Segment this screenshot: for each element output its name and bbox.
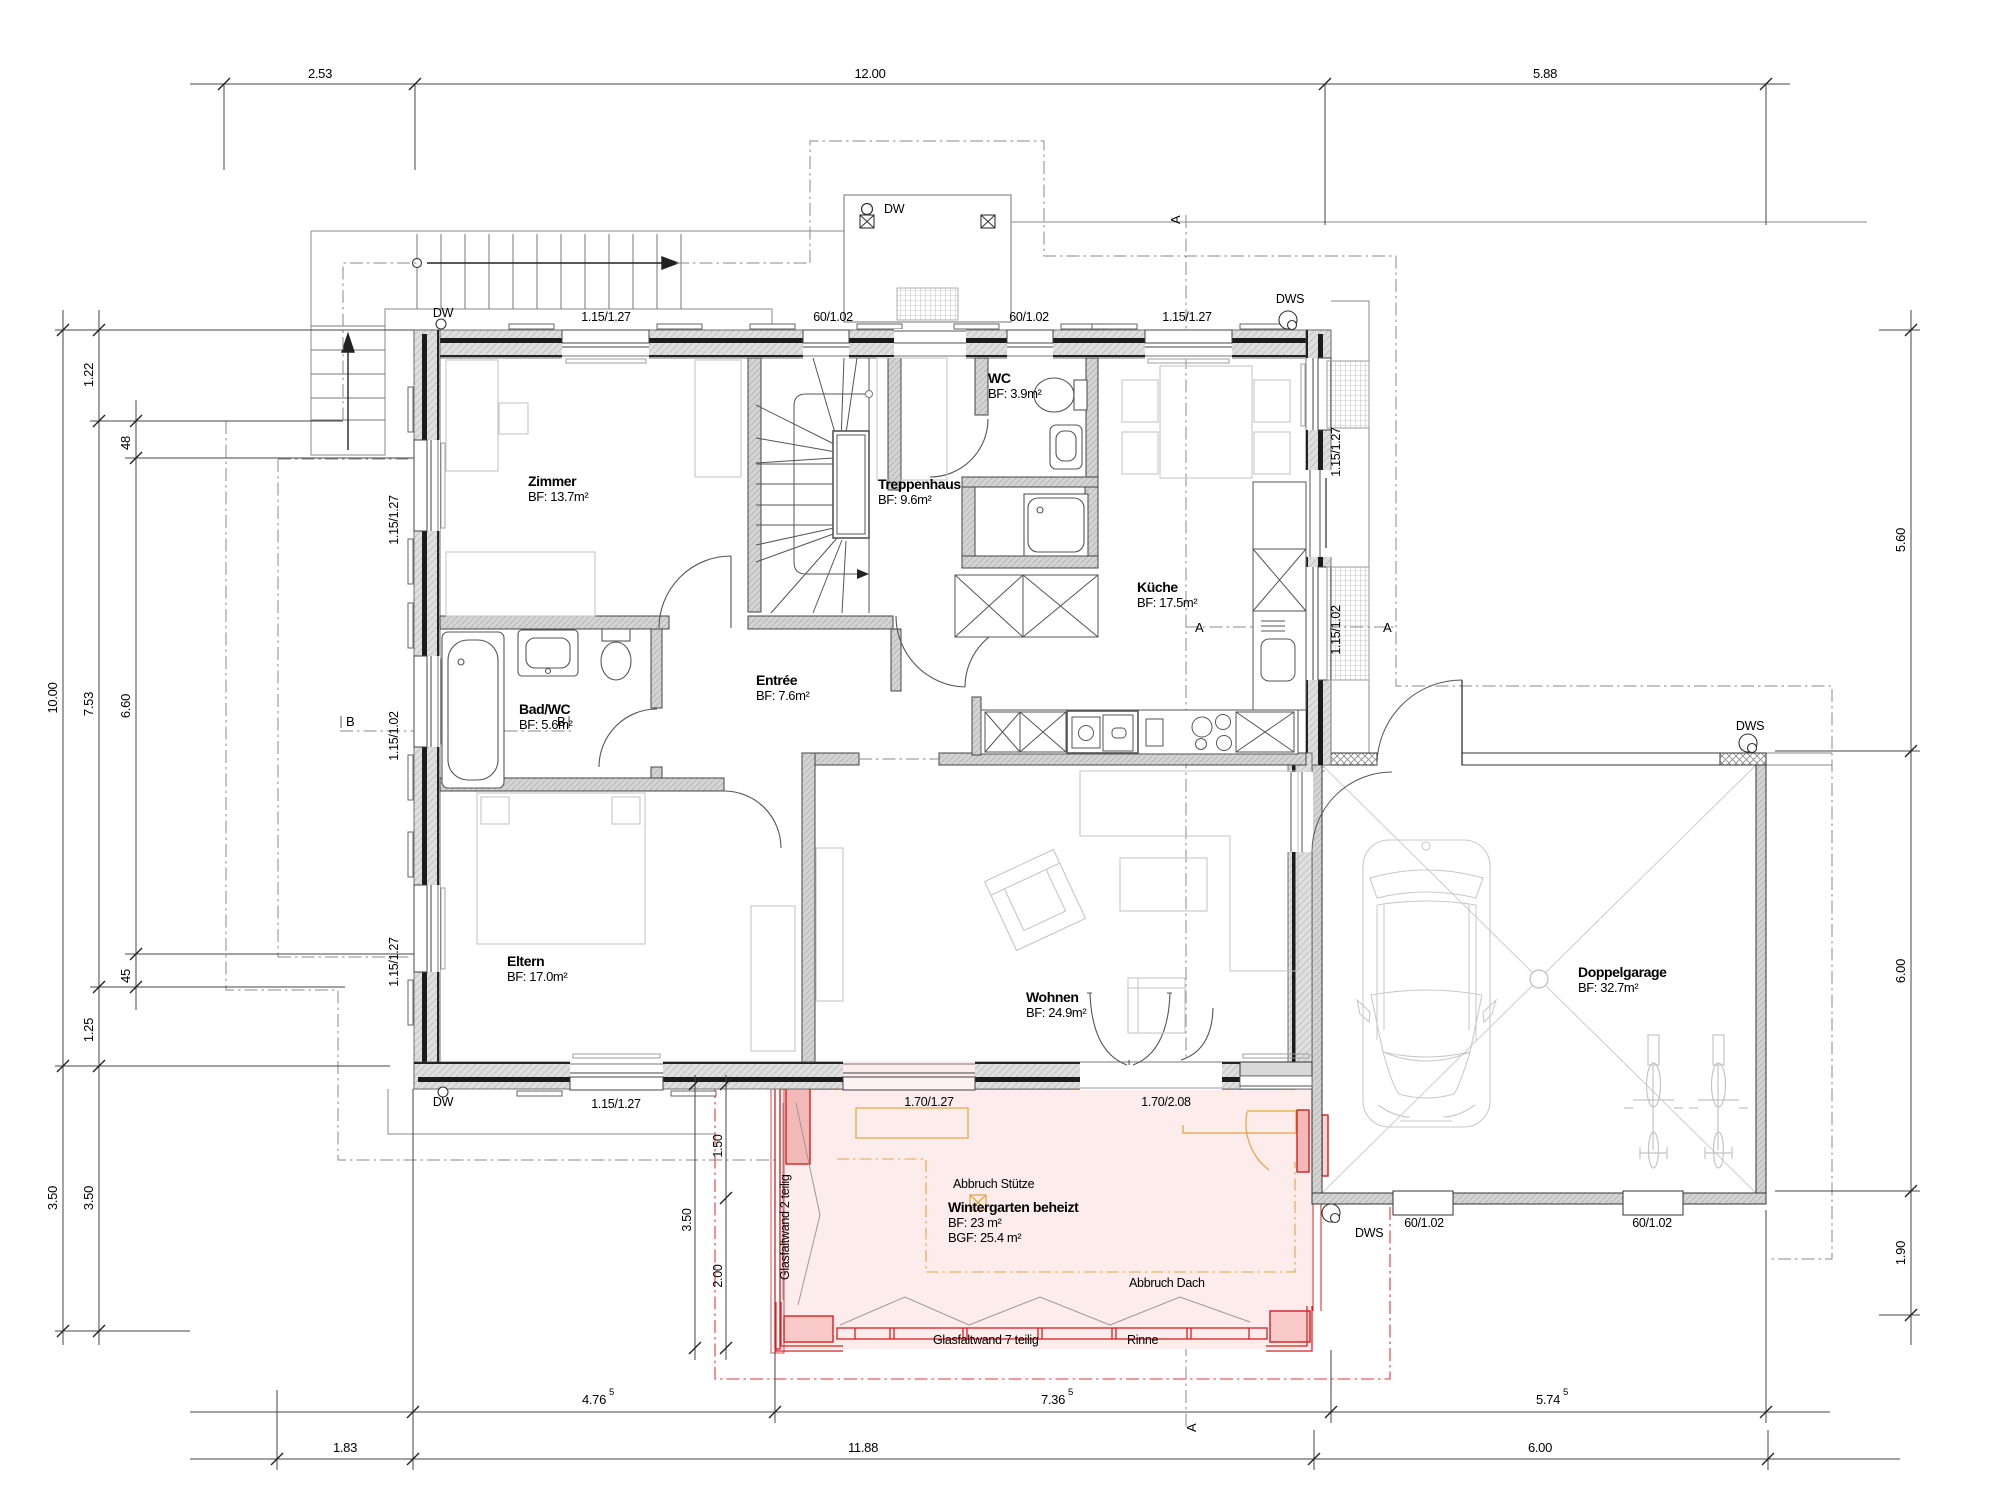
svg-text:BF: 23 m²: BF: 23 m² [948, 1215, 1003, 1230]
svg-text:60/1.02: 60/1.02 [1009, 310, 1049, 324]
svg-text:BF: 9.6m²: BF: 9.6m² [878, 492, 933, 507]
svg-text:45: 45 [118, 969, 133, 983]
svg-text:Doppelgarage: Doppelgarage [1578, 964, 1667, 980]
svg-text:5.74: 5.74 [1536, 1392, 1560, 1407]
svg-text:5: 5 [1068, 1387, 1073, 1398]
svg-text:5: 5 [609, 1387, 614, 1398]
svg-text:Zimmer: Zimmer [528, 473, 577, 489]
svg-text:DW: DW [433, 306, 454, 320]
svg-text:BF: 32.7m²: BF: 32.7m² [1578, 980, 1639, 995]
svg-text:BF: 7.6m²: BF: 7.6m² [756, 688, 811, 703]
svg-text:1.70/2.08: 1.70/2.08 [1141, 1095, 1191, 1109]
svg-text:DWS: DWS [1355, 1226, 1383, 1240]
svg-text:Entrée: Entrée [756, 672, 798, 688]
svg-text:5.60: 5.60 [1893, 528, 1908, 552]
svg-text:Treppenhaus: Treppenhaus [878, 476, 961, 492]
svg-text:6.00: 6.00 [1528, 1440, 1552, 1455]
svg-text:Küche: Küche [1137, 579, 1178, 595]
svg-text:BF: 24.9m²: BF: 24.9m² [1026, 1005, 1087, 1020]
svg-text:5.88: 5.88 [1533, 66, 1557, 81]
svg-text:7.53: 7.53 [81, 692, 96, 716]
svg-text:Eltern: Eltern [507, 953, 544, 969]
svg-text:BF: 17.5m²: BF: 17.5m² [1137, 595, 1198, 610]
svg-text:4.76: 4.76 [582, 1392, 606, 1407]
svg-text:60/1.02: 60/1.02 [1632, 1216, 1672, 1230]
svg-text:DW: DW [884, 202, 905, 216]
svg-text:2.53: 2.53 [308, 66, 332, 81]
svg-text:5: 5 [1563, 1387, 1568, 1398]
svg-text:1.15/1.27: 1.15/1.27 [581, 310, 631, 324]
svg-text:1.15/1.27: 1.15/1.27 [387, 937, 401, 987]
svg-text:Wintergarten beheizt: Wintergarten beheizt [948, 1199, 1079, 1215]
svg-text:DWS: DWS [1736, 719, 1764, 733]
svg-text:A: A [1383, 620, 1392, 635]
svg-text:1.15/1.27: 1.15/1.27 [1162, 310, 1212, 324]
svg-text:1.15/1.27: 1.15/1.27 [387, 495, 401, 545]
svg-text:1.70/1.27: 1.70/1.27 [904, 1095, 954, 1109]
svg-text:2.00: 2.00 [711, 1264, 725, 1287]
svg-text:3.50: 3.50 [680, 1208, 694, 1231]
svg-text:B: B [346, 714, 355, 729]
svg-text:6.60: 6.60 [118, 694, 133, 718]
svg-text:BF: 13.7m²: BF: 13.7m² [528, 489, 589, 504]
svg-text:Rinne: Rinne [1127, 1333, 1159, 1347]
svg-text:11.88: 11.88 [848, 1440, 878, 1455]
svg-text:1.50: 1.50 [711, 1134, 725, 1157]
svg-text:1.25: 1.25 [81, 1018, 96, 1042]
svg-text:48: 48 [118, 436, 133, 450]
svg-text:1.22: 1.22 [81, 363, 96, 387]
svg-text:A: A [1195, 620, 1204, 635]
svg-text:Bad/WC: Bad/WC [519, 701, 571, 717]
svg-text:12.00: 12.00 [854, 66, 885, 81]
svg-text:Abbruch Dach: Abbruch Dach [1129, 1276, 1205, 1290]
svg-text:A: A [1168, 215, 1183, 224]
svg-text:1.15/1.02: 1.15/1.02 [1329, 605, 1343, 655]
svg-text:WC: WC [988, 370, 1011, 386]
svg-text:1.15/1.27: 1.15/1.27 [591, 1097, 641, 1111]
svg-text:7.36: 7.36 [1041, 1392, 1065, 1407]
svg-text:Glasfaltwand 7 teilig: Glasfaltwand 7 teilig [933, 1333, 1039, 1347]
svg-text:A: A [1184, 1423, 1199, 1432]
svg-text:Wohnen: Wohnen [1026, 989, 1079, 1005]
svg-text:60/1.02: 60/1.02 [813, 310, 853, 324]
svg-text:Glasfaltwand 2 teilig: Glasfaltwand 2 teilig [778, 1174, 792, 1280]
svg-text:1.83: 1.83 [333, 1440, 357, 1455]
svg-text:Abbruch Stütze: Abbruch Stütze [953, 1177, 1035, 1191]
svg-text:60/1.02: 60/1.02 [1404, 1216, 1444, 1230]
svg-text:3.50: 3.50 [45, 1186, 60, 1210]
svg-text:1.15/1.27: 1.15/1.27 [1329, 427, 1343, 477]
svg-text:6.00: 6.00 [1893, 959, 1908, 983]
svg-text:DWS: DWS [1276, 292, 1304, 306]
svg-text:BF: 5.6m²: BF: 5.6m² [519, 717, 574, 732]
svg-text:BF: 17.0m²: BF: 17.0m² [507, 969, 568, 984]
svg-text:10.00: 10.00 [45, 682, 60, 713]
svg-text:3.50: 3.50 [81, 1186, 96, 1210]
svg-text:1.15/1.02: 1.15/1.02 [387, 711, 401, 761]
svg-text:BF: 3.9m²: BF: 3.9m² [988, 386, 1043, 401]
svg-text:BGF: 25.4 m²: BGF: 25.4 m² [948, 1230, 1022, 1245]
svg-text:1.90: 1.90 [1893, 1241, 1908, 1265]
